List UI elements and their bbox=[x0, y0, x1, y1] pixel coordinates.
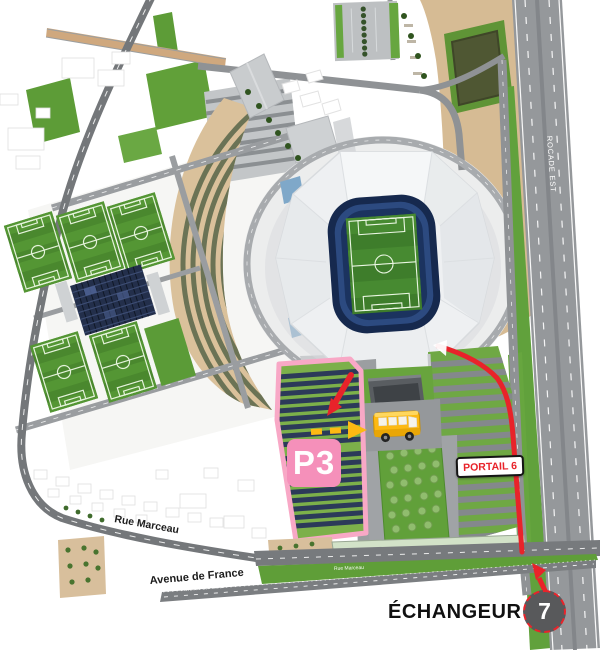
grove-parking bbox=[364, 435, 459, 549]
portail-6-badge: PORTAIL 6 bbox=[456, 455, 525, 478]
map-canvas: ROCADE EST Rue Marceau Avenue de France … bbox=[0, 0, 600, 650]
tram-plaza bbox=[333, 1, 400, 61]
echangeur-label: ÉCHANGEUR bbox=[388, 601, 518, 624]
echangeur-7-badge: 7 bbox=[523, 590, 566, 633]
stadium-bowl bbox=[325, 192, 442, 335]
p3-parking-badge-label: P3 bbox=[293, 444, 335, 482]
portail-6-badge-label: PORTAIL 6 bbox=[463, 460, 517, 474]
p3-parking-badge: P3 bbox=[287, 439, 341, 487]
stadium-pitch bbox=[346, 214, 423, 315]
stadium-access-map: ROCADE EST Rue Marceau Avenue de France … bbox=[0, 0, 600, 650]
echangeur-7-badge-number: 7 bbox=[538, 598, 551, 625]
rue-marceau-onroad-label: Rue Marceau bbox=[334, 565, 364, 572]
